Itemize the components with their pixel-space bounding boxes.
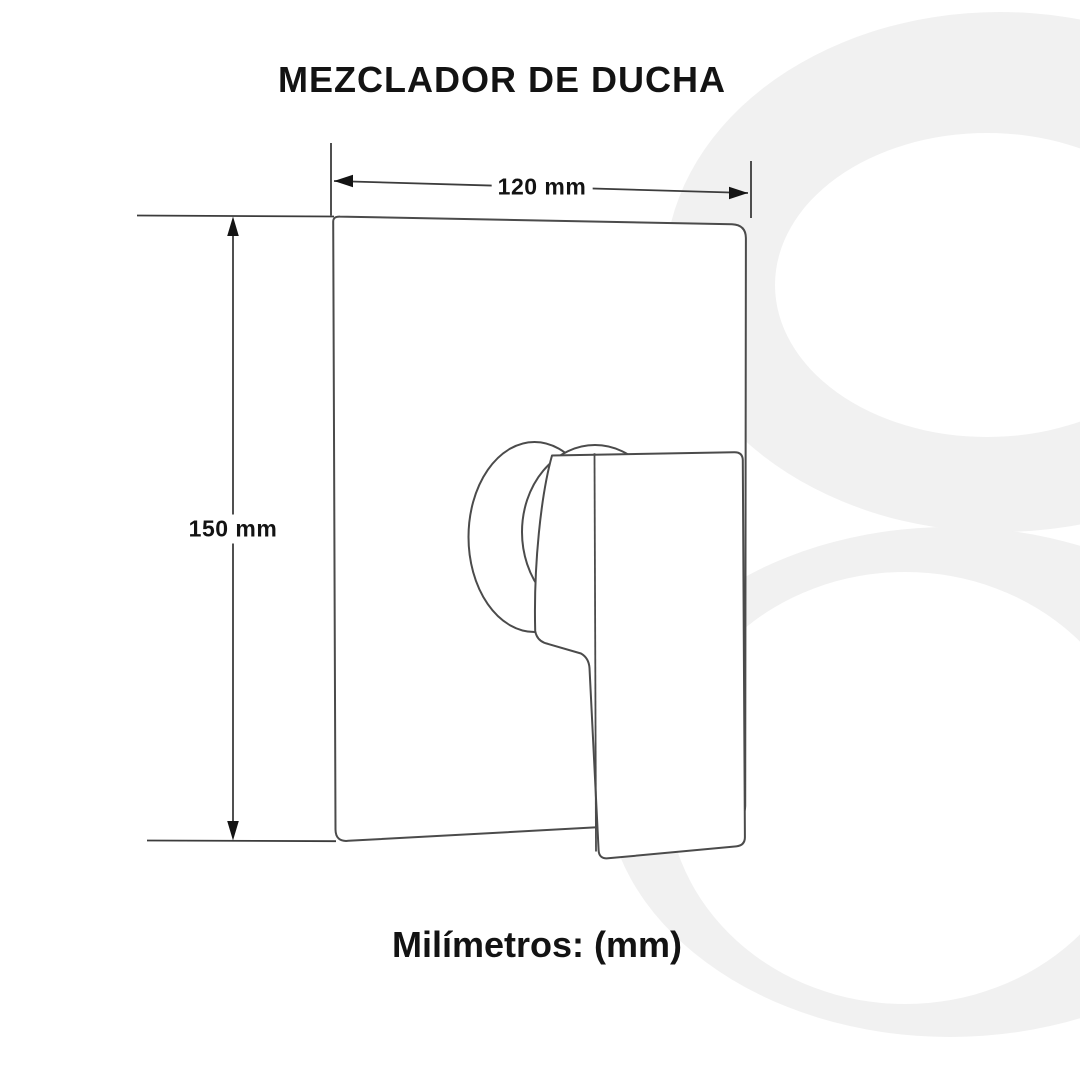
height-arrowhead-bottom bbox=[227, 821, 239, 841]
width-dimension-label: 120 mm bbox=[492, 173, 593, 202]
height-extension-line-bottom bbox=[147, 841, 336, 842]
page-title: MEZCLADOR DE DUCHA bbox=[278, 59, 726, 101]
height-arrowhead-top bbox=[227, 217, 239, 237]
page-canvas: MEZCLADOR DE DUCHA 120 mm 150 mm Milímet… bbox=[0, 0, 1080, 1080]
width-arrowhead-left bbox=[334, 175, 353, 187]
height-dimension-label: 150 mm bbox=[183, 515, 284, 544]
units-caption: Milímetros: (mm) bbox=[392, 924, 682, 966]
height-extension-line-top bbox=[137, 216, 334, 217]
diagram-svg bbox=[0, 0, 1080, 1080]
